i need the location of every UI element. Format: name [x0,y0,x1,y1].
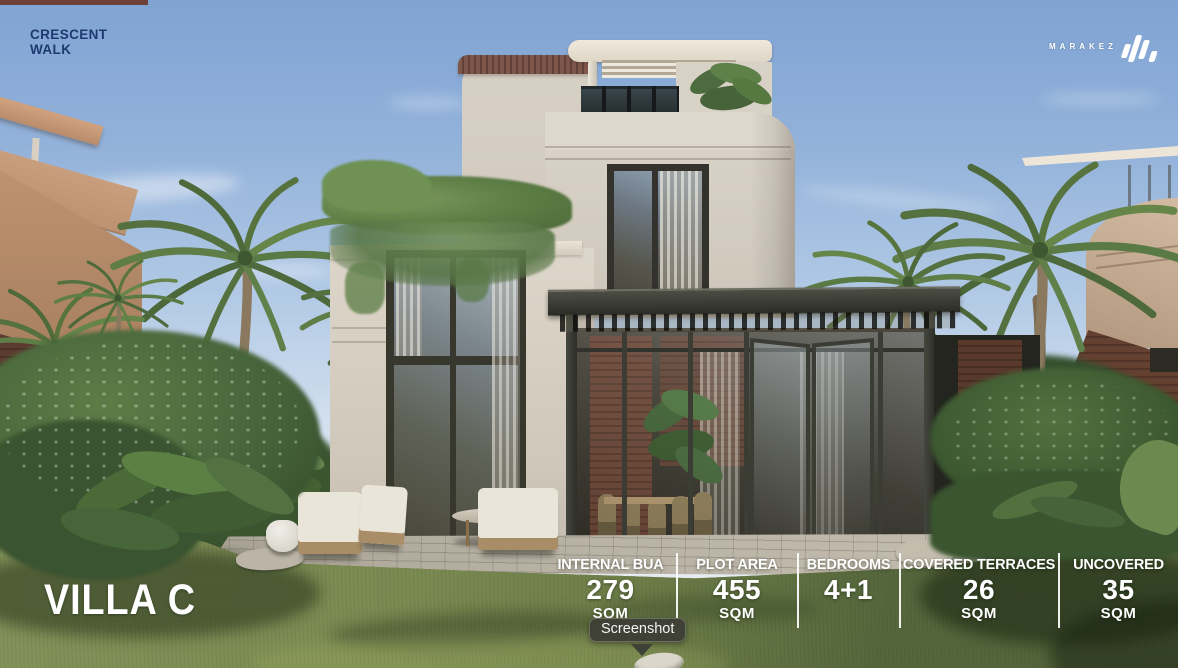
marakez-logo: MARAKEZ [1049,30,1156,62]
stat-value: 35 [1059,575,1178,605]
stat-value: 279 [545,575,676,605]
stat-plot-area: PLOT AREA 455 SQM [677,557,797,635]
stat-label: INTERNAL BUA [545,557,676,574]
stat-label: BEDROOMS [798,557,899,574]
stat-label: UNCOVERED [1059,557,1178,574]
marakez-logo-text: MARAKEZ [1049,42,1117,51]
stat-label: PLOT AREA [677,557,797,574]
stat-unit: SQM [677,605,797,622]
villa-brochure-screenshot: CRESCENT WALK MARAKEZ VILLA C INTERNAL B… [0,0,1178,668]
crescent-walk-logo: CRESCENT WALK [30,27,107,57]
stat-bedrooms: BEDROOMS 4+1 [798,557,899,635]
stat-unit: SQM [1059,605,1178,622]
stat-value: 4+1 [798,575,899,605]
stat-covered-terraces: COVERED TERRACES 26 SQM [900,557,1058,635]
stat-uncovered: UNCOVERED 35 SQM [1059,557,1178,635]
crescent-walk-line2: WALK [30,42,107,57]
marakez-bars-icon [1123,30,1156,62]
stat-unit: SQM [900,605,1058,622]
stat-value: 455 [677,575,797,605]
villa-title: VILLA C [44,576,196,625]
screenshot-tooltip: Screenshot [589,618,686,642]
crescent-walk-line1: CRESCENT [30,27,107,42]
stat-label: COVERED TERRACES [900,557,1058,574]
stat-value: 26 [900,575,1058,605]
